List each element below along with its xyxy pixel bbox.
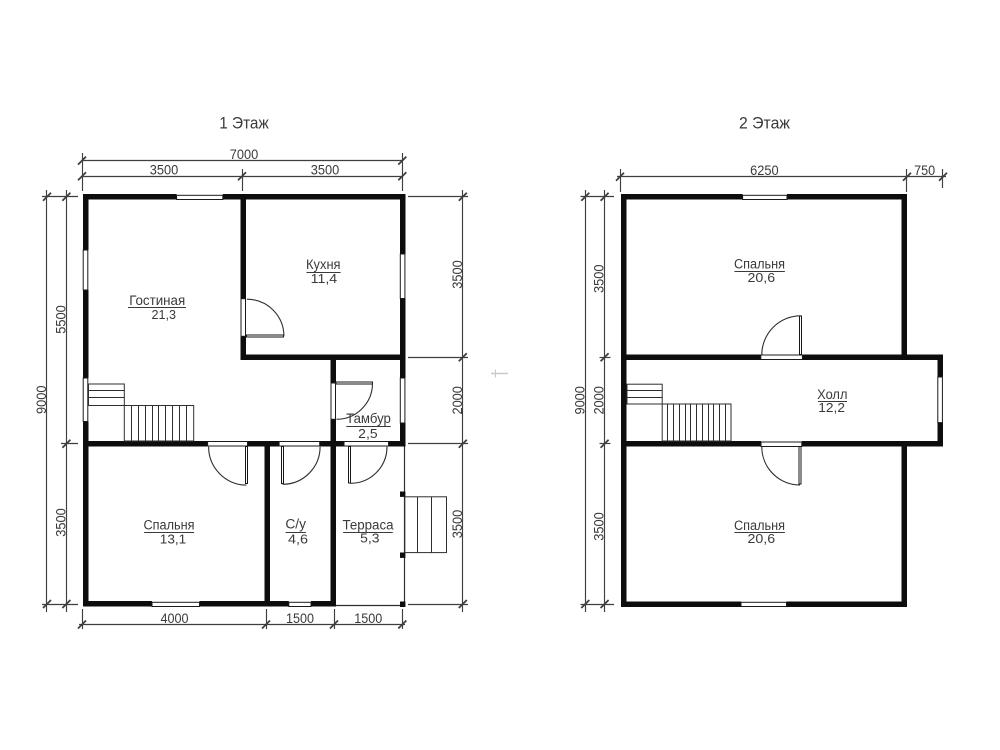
svg-text:Спальня: Спальня <box>734 518 785 533</box>
svg-text:20,6: 20,6 <box>748 271 776 285</box>
svg-text:7000: 7000 <box>230 147 259 162</box>
svg-text:4000: 4000 <box>161 611 189 626</box>
svg-text:3500: 3500 <box>53 508 68 537</box>
svg-text:С/у: С/у <box>285 517 306 532</box>
svg-text:Тамбур: Тамбур <box>346 411 391 426</box>
svg-text:1500: 1500 <box>286 611 314 626</box>
svg-text:5500: 5500 <box>53 305 68 334</box>
svg-text:12,2: 12,2 <box>818 401 845 415</box>
svg-text:Спальня: Спальня <box>734 256 785 271</box>
svg-text:13,1: 13,1 <box>160 532 187 546</box>
svg-text:3500: 3500 <box>592 264 607 293</box>
svg-text:2 Этаж: 2 Этаж <box>739 115 790 133</box>
svg-text:Терраса: Терраса <box>343 518 395 533</box>
svg-text:2000: 2000 <box>450 386 465 415</box>
svg-text:Кухня: Кухня <box>306 257 341 272</box>
svg-text:4,6: 4,6 <box>288 533 308 547</box>
svg-text:2000: 2000 <box>592 386 607 415</box>
svg-text:3500: 3500 <box>450 510 465 539</box>
svg-text:11,4: 11,4 <box>311 272 338 286</box>
svg-text:3500: 3500 <box>450 260 465 289</box>
svg-text:2,5: 2,5 <box>358 427 377 441</box>
svg-text:750: 750 <box>914 163 935 178</box>
svg-text:3500: 3500 <box>150 162 179 177</box>
svg-text:9000: 9000 <box>34 385 49 414</box>
svg-text:6250: 6250 <box>750 163 779 178</box>
svg-text:3500: 3500 <box>311 162 340 177</box>
svg-text:9000: 9000 <box>572 386 587 415</box>
svg-text:21,3: 21,3 <box>152 308 177 322</box>
svg-text:Холл: Холл <box>817 387 847 402</box>
svg-text:1 Этаж: 1 Этаж <box>219 115 269 133</box>
svg-text:5,3: 5,3 <box>360 531 379 545</box>
svg-text:20,6: 20,6 <box>748 532 776 546</box>
svg-text:3500: 3500 <box>592 512 607 541</box>
svg-text:Спальня: Спальня <box>144 518 195 533</box>
svg-text:Гостиная: Гостиная <box>129 293 185 308</box>
svg-text:1500: 1500 <box>354 611 382 626</box>
